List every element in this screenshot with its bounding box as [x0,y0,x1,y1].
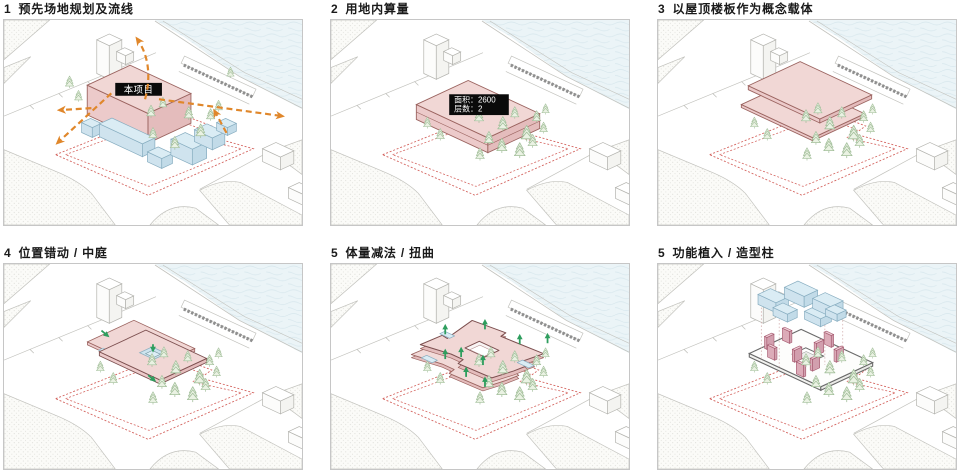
project-label: 本项目 [115,83,162,96]
panel-number: 5 [658,246,665,260]
tower-building [424,278,461,323]
panel-1-title: 1 预先场地规划及流线 [4,2,303,16]
site-diagram-canvas-3 [657,19,957,226]
panel-6: 5 功能植入 / 造型柱 [657,246,957,470]
stats-label: 面积：2600层数：2 [449,94,509,115]
panel-number: 4 [4,246,11,260]
panel-number: 5 [331,246,338,260]
tower-building [424,34,461,79]
panel-1: 1 预先场地规划及流线 本项目 [3,2,303,226]
site-diagram-canvas-5 [330,263,630,470]
water [155,264,302,353]
project-label-text: 本项目 [124,84,154,95]
panel-5-title: 5 体量减法 / 扭曲 [331,246,630,260]
site-diagram-canvas-2: 面积：2600层数：2 [330,19,630,226]
panel-6-title: 5 功能植入 / 造型柱 [658,246,957,260]
panel-title-text: 位置错动 / 中庭 [18,246,107,260]
panel-5: 5 体量减法 / 扭曲 [330,246,630,470]
panel-2: 2 用地内算量 面积：2600层数：2 [330,2,630,226]
panel-title-text: 预先场地规划及流线 [18,2,133,16]
panel-title-text: 以屋顶楼板作为概念载体 [672,2,813,16]
diagram-grid: 1 预先场地规划及流线 本项目 2 用地内算量 面积：2600层数：2 3 以屋… [0,0,960,472]
panel-4-title: 4 位置错动 / 中庭 [4,246,303,260]
panel-4: 4 位置错动 / 中庭 [3,246,303,470]
site-diagram-canvas-6 [657,263,957,470]
panel-title-text: 体量减法 / 扭曲 [345,246,434,260]
floors-label-text: 层数：2 [454,104,482,114]
panel-3: 3 以屋顶楼板作为概念载体 [657,2,957,226]
panel-number: 2 [331,2,338,16]
panel-3-title: 3 以屋顶楼板作为概念载体 [658,2,957,16]
site-diagram-canvas-1: 本项目 [3,19,303,226]
area-label-text: 面积：2600 [454,95,496,105]
panel-number: 1 [4,2,11,16]
panel-title-text: 用地内算量 [345,2,409,16]
site-diagram-canvas-4 [3,263,303,470]
panel-title-text: 功能植入 / 造型柱 [672,246,774,260]
tower-building [97,278,134,323]
panel-2-title: 2 用地内算量 [331,2,630,16]
panel-number: 3 [658,2,665,16]
